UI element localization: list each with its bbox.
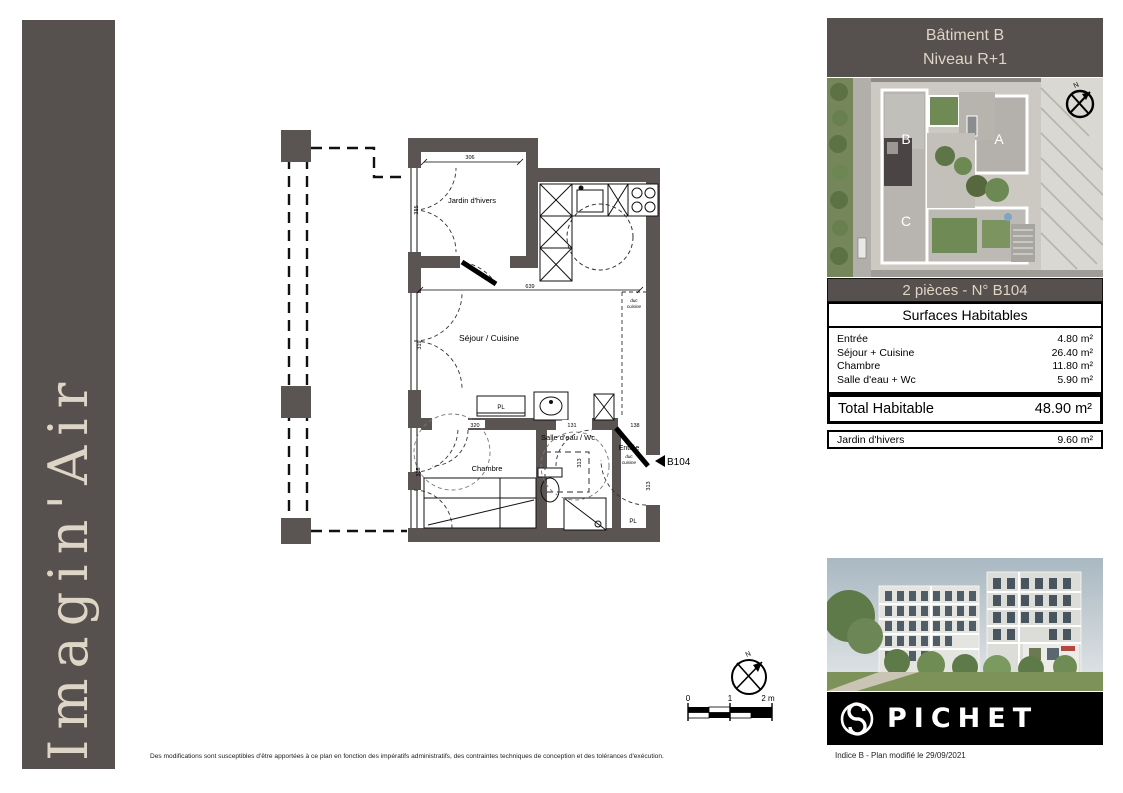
scale-bar: [688, 703, 772, 721]
balcony-pillars: [281, 130, 311, 544]
site-green-strip: [827, 78, 853, 277]
site-plan-image: A B C N: [827, 78, 1103, 277]
brand-name: Imagin'Air: [22, 20, 115, 769]
table-row: Chambre 11.80 m²: [837, 360, 1093, 374]
balcony-dashed-outline: [289, 148, 407, 531]
scale-1-label: 1: [728, 694, 733, 703]
plan-revision-note: Indice B - Plan modifié le 29/09/2021: [835, 751, 966, 760]
row-value: 4.80 m²: [1057, 333, 1093, 347]
kitchen-counters: [540, 184, 658, 281]
table-row: Salle d'eau + Wc 5.90 m²: [837, 374, 1093, 388]
scale-and-compass: N 0 1 2 m: [675, 645, 785, 730]
site-label-a: A: [994, 131, 1004, 147]
pichet-logo-text: PICHET: [887, 703, 1038, 734]
closet-label-sejour: PL: [497, 405, 505, 411]
row-value: 11.80 m²: [1052, 360, 1093, 374]
pichet-logo-icon: [837, 699, 877, 739]
bed: [424, 478, 536, 528]
site-label-c: C: [901, 213, 911, 229]
disclaimer-text: Des modifications sont susceptibles d'êt…: [150, 753, 775, 760]
north-compass-icon: [732, 660, 766, 694]
annex-label: Jardin d'hivers: [837, 434, 904, 446]
bathroom-fixtures: [538, 468, 606, 530]
room-label-chambre: Chambre: [472, 464, 503, 473]
dim-639: 639: [525, 284, 534, 290]
kitchen-duct-strip: [622, 292, 646, 418]
annotation-duc-entree-line2: cuisine: [622, 460, 637, 465]
annotation-duc-line1: duc: [630, 298, 638, 303]
building-name: Bâtiment B: [926, 24, 1004, 48]
room-label-jardin: Jardin d'hivers: [448, 196, 496, 205]
row-value: 26.40 m²: [1052, 347, 1093, 361]
annotation-duc-line2: cuisine: [627, 304, 642, 309]
dim-313b: 313: [646, 481, 652, 490]
table-row: Séjour + Cuisine 26.40 m²: [837, 347, 1093, 361]
total-row: Total Habitable 48.90 m²: [827, 394, 1103, 424]
unit-ref-label: B104: [667, 457, 691, 468]
row-value: 5.90 m²: [1057, 374, 1093, 388]
building-render-image: [827, 558, 1103, 691]
developer-logo: PICHET: [827, 692, 1103, 745]
level-name: Niveau R+1: [923, 48, 1007, 72]
annotation-duc-entree-line1: duc: [625, 454, 633, 459]
closet-label-entree: PL: [629, 519, 637, 525]
annex-row: Jardin d'hivers 9.60 m²: [827, 430, 1103, 449]
total-value: 48.90 m²: [1035, 401, 1092, 417]
scale-0-label: 0: [686, 694, 691, 703]
row-label: Séjour + Cuisine: [837, 347, 914, 361]
dim-138: 138: [630, 423, 639, 429]
surfaces-title: Surfaces Habitables: [902, 307, 1027, 323]
dim-306: 306: [465, 155, 474, 161]
dim-131: 131: [567, 423, 576, 429]
dim-319: 319: [417, 340, 423, 349]
plan-sheet: Imagin'Air: [0, 0, 1123, 793]
row-label: Salle d'eau + Wc: [837, 374, 916, 388]
floorplan-drawing: Jardin d'hivers Séjour / Cuisine Chambre…: [275, 125, 700, 555]
surfaces-title-box: Surfaces Habitables: [827, 302, 1103, 328]
table-row: Entrée 4.80 m²: [837, 333, 1093, 347]
unit-title-bar: 2 pièces - N° B104: [827, 278, 1103, 302]
building-header: Bâtiment B Niveau R+1: [827, 18, 1103, 77]
dim-313a: 313: [577, 458, 583, 467]
dim-320: 320: [470, 423, 479, 429]
row-label: Entrée: [837, 333, 868, 347]
dim-315a: 315: [414, 205, 420, 214]
row-label: Chambre: [837, 360, 880, 374]
brand-sidebar: Imagin'Air: [22, 20, 115, 769]
dim-315b: 315: [416, 467, 422, 476]
bathroom-turning-circle: [541, 432, 609, 500]
room-label-sdb: Salle d'eau / Wc: [541, 433, 595, 442]
site-label-b: B: [901, 131, 910, 147]
room-label-sejour: Séjour / Cuisine: [459, 333, 519, 343]
scale-2m-label: 2 m: [761, 694, 775, 703]
compass-north-label: N: [745, 650, 753, 658]
total-label: Total Habitable: [838, 401, 934, 417]
surfaces-table: Entrée 4.80 m² Séjour + Cuisine 26.40 m²…: [827, 328, 1103, 394]
annex-value: 9.60 m²: [1057, 434, 1093, 446]
room-label-entree: Entrée: [619, 445, 640, 452]
unit-title: 2 pièces - N° B104: [902, 282, 1027, 299]
